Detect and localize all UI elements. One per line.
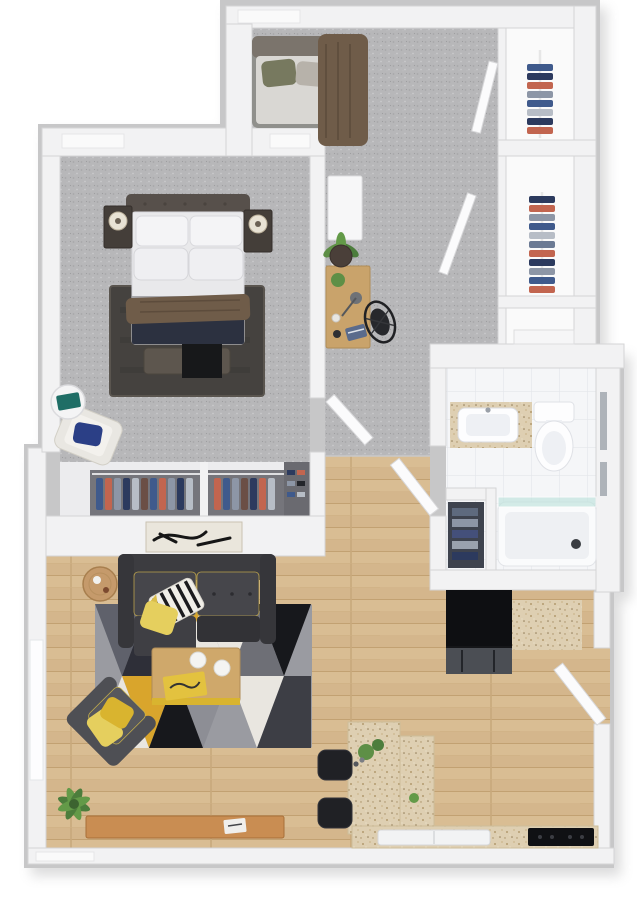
bar-stool [318,798,352,828]
hall-closet-middle [529,192,555,293]
cooktop-knob [550,835,554,839]
bar-stool [318,750,352,780]
bench-runner [182,344,222,378]
clothes-item [105,478,112,510]
sofa-arm-left [118,554,134,648]
bottom-left-recess [36,852,94,861]
bed-pillow [136,216,188,246]
clothes-item [529,268,555,275]
wall-closet-div-ab [498,140,596,156]
cooktop [528,828,594,846]
clothes-item [529,214,555,221]
shoe [297,481,305,486]
table-cup [93,576,101,584]
towel [452,530,478,538]
den-window-recess [238,10,300,23]
clothes-item [527,100,553,107]
clothes-item [529,277,555,284]
shoe [287,492,295,497]
closet-shelf-unit [514,330,574,344]
clothes-item [114,478,121,510]
living-left-window [30,640,43,780]
wall-art [146,522,242,552]
clothes-item [96,478,103,510]
fridge-top-face [446,590,512,646]
desk [326,266,370,348]
clothes-item [177,478,184,510]
clothes-item [268,478,275,510]
plate [214,660,230,676]
clothes-item [529,196,555,203]
clothes-item [527,109,553,116]
lamp-top [115,218,121,224]
wall-bathroom-top [430,344,624,368]
towel [452,541,478,549]
bar-plant [372,739,384,751]
clothes-item [529,241,555,248]
toilet-seat [542,431,566,465]
bar-bottle [353,761,358,766]
table-top [83,567,117,601]
bar-herb [409,793,419,803]
bedroom-window-recess-left [62,134,124,148]
bar-plant [358,744,374,760]
shoe [297,470,305,475]
coffee-table [152,648,240,705]
sofa-seat-front [197,616,260,642]
bathtub [498,497,596,566]
clothes-item [241,478,248,510]
counter-beside-fridge [512,600,582,650]
clothes-item [529,259,555,266]
shoe [287,481,295,486]
floorplan-render [0,0,637,900]
round-side-table-living [83,567,117,601]
wall-bottom [28,848,614,864]
towel [452,508,478,516]
bathroom-slit-window-a [600,392,607,450]
lamp-top [255,221,261,227]
fern-center [69,799,79,809]
bar-bottle [359,757,364,762]
wardrobe-clothes-left [96,478,193,510]
olive-pillow [261,58,298,87]
clothes-item [250,478,257,510]
towel [452,552,478,560]
wall-linen-divider [486,488,496,570]
bathroom-slit-window-b [600,462,607,496]
shoe-nook [284,462,310,516]
bed-pillow [189,248,243,280]
breakfast-bar [348,722,434,834]
console-top [86,816,284,838]
clothes-item [214,478,221,510]
wall-closet-div-bc [498,296,596,308]
bar-counter [348,722,434,834]
plate [190,652,206,668]
toilet-tank [534,402,574,422]
console-book [223,818,246,834]
wardrobe-clothes-right [214,478,275,510]
clothes-item [132,478,139,510]
hall-closet-lower [514,330,574,344]
wall-bathroom-bottom [430,570,596,590]
clothes-item [123,478,130,510]
console-bench [86,816,284,838]
toilet [534,402,574,471]
clothes-item [527,118,553,125]
white-cabinet [328,176,362,240]
clothes-item [159,478,166,510]
tub-inner [505,512,589,559]
shoe [297,492,305,497]
coffee-table-yellow-edge [152,698,240,705]
clothes-item [529,232,555,239]
bedroom-window-recess-right [270,134,310,148]
desk-bottle [333,330,341,338]
clothes-item [529,223,555,230]
wall-bathroom-left-a [430,368,446,446]
clothes-item [527,73,553,80]
clothes-item [168,478,175,510]
sofa-arm-right [260,554,276,644]
faucet [485,407,490,412]
wall-linen-stub [446,488,486,500]
clothes-item [259,478,266,510]
tub-item [571,539,581,549]
bed-pillow [134,248,188,280]
bottom-counter [352,826,598,848]
wardrobe-divider [200,462,208,516]
clothes-item [529,205,555,212]
stool-cushion [330,245,352,267]
bedroom-wardrobe [90,462,310,516]
wall-kitchen-right-a [594,592,610,648]
cooktop-knob [538,835,542,839]
clothes-item [527,82,553,89]
clothes-item [223,478,230,510]
refrigerator [446,590,512,674]
cooktop-knob [568,835,572,839]
table-item [103,587,109,593]
shoe [287,470,295,475]
linen-closet [448,502,484,568]
clothes-item [186,478,193,510]
towel [452,519,478,527]
wall-divider-bedroom-den [310,156,325,398]
clothes-item [527,64,553,71]
clothes-item [150,478,157,510]
fridge-drawers [446,648,512,674]
wall-bathroom-right [596,348,620,592]
desk-plant [331,273,345,287]
clothes-item [527,91,553,98]
clothes-item [529,250,555,257]
clothes-item [232,478,239,510]
tub-glass-screen [498,497,596,507]
wall-den-left [226,24,252,156]
sink-basin [466,414,510,436]
clothes-item [529,286,555,293]
bed-pillow [190,216,242,246]
bed-throw-blanket [126,294,251,324]
clothes-item [141,478,148,510]
clothes-item [527,127,553,134]
floorplan-svg [0,0,637,900]
desk-mug [332,314,340,322]
cooktop-knob [580,835,584,839]
